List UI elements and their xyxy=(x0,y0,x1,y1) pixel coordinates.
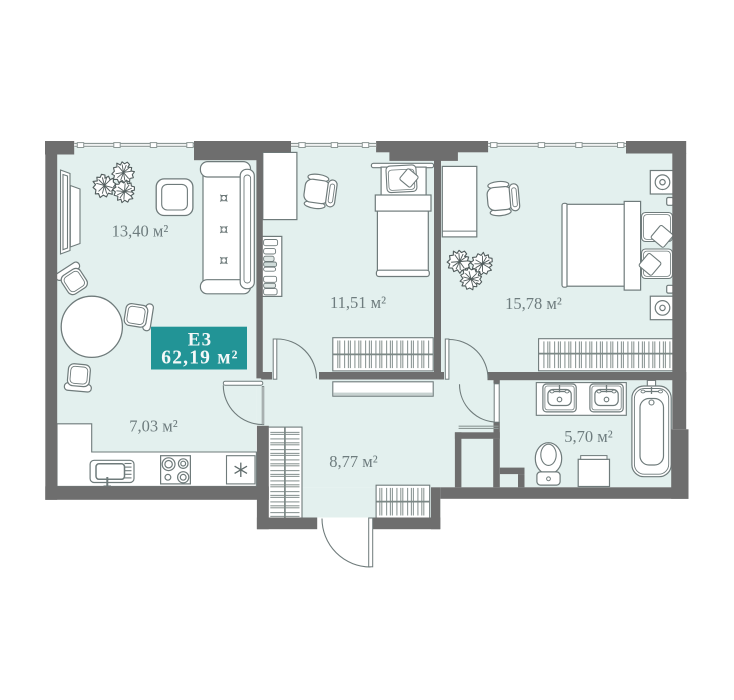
svg-text:11,51 м²: 11,51 м² xyxy=(330,293,386,312)
svg-text:62,19 м²: 62,19 м² xyxy=(161,348,238,369)
svg-text:7,03 м²: 7,03 м² xyxy=(129,417,177,436)
svg-text:8,77 м²: 8,77 м² xyxy=(329,452,377,471)
svg-text:5,70 м²: 5,70 м² xyxy=(564,427,612,446)
svg-text:13,40 м²: 13,40 м² xyxy=(112,222,169,241)
svg-text:15,78 м²: 15,78 м² xyxy=(505,294,562,313)
